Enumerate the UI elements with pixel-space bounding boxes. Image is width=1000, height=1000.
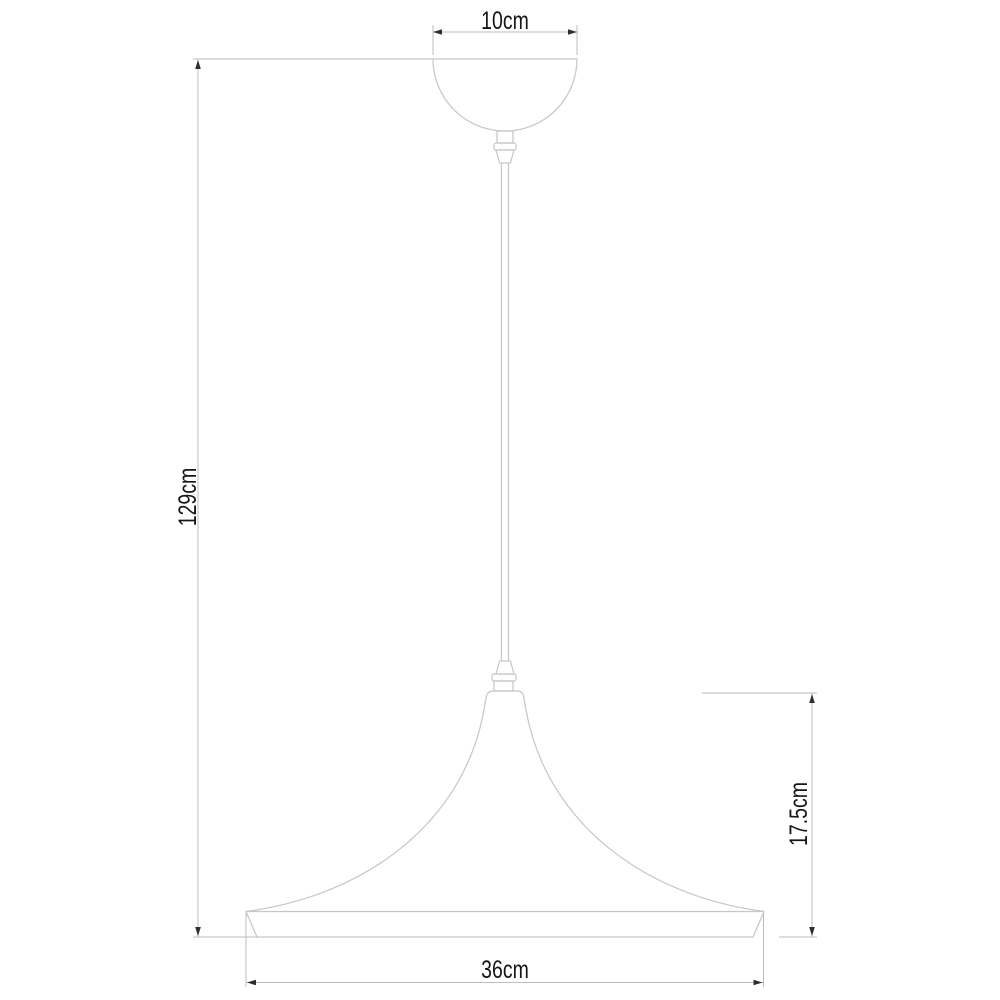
arrow-175-bottom: [809, 927, 815, 936]
canopy-strain-relief: [496, 150, 514, 163]
lamp-outline-group: [246, 59, 764, 937]
arrow-129-top: [195, 60, 201, 69]
arrow-10-left: [433, 29, 442, 35]
canopy-socket-flange: [494, 143, 516, 150]
arrow-10-right: [568, 29, 577, 35]
canopy-socket-neck: [497, 131, 513, 143]
shade-body: [246, 691, 764, 937]
label-canopy-diameter: 10cm: [481, 7, 529, 35]
pendant-lamp-dimension-diagram: 10cm 129cm 17.5cm 36cm: [0, 0, 1000, 1000]
shade-socket-neck: [494, 681, 513, 691]
label-shade-diameter: 36cm: [481, 956, 529, 984]
arrow-36-right: [754, 980, 763, 986]
dimension-drawing-canvas: 10cm 129cm 17.5cm 36cm: [0, 0, 1000, 1000]
dimension-lines-group: [193, 25, 817, 987]
dimension-arrows-group: [195, 29, 815, 985]
arrow-36-left: [247, 980, 256, 986]
arrow-129-bottom: [195, 927, 201, 936]
shade-strain-relief: [496, 661, 514, 674]
ceiling-canopy-dome: [433, 59, 577, 131]
shade-socket-flange: [492, 674, 516, 681]
label-shade-height: 17.5cm: [785, 782, 813, 846]
label-overall-drop: 129cm: [174, 468, 202, 527]
arrow-175-top: [809, 694, 815, 703]
